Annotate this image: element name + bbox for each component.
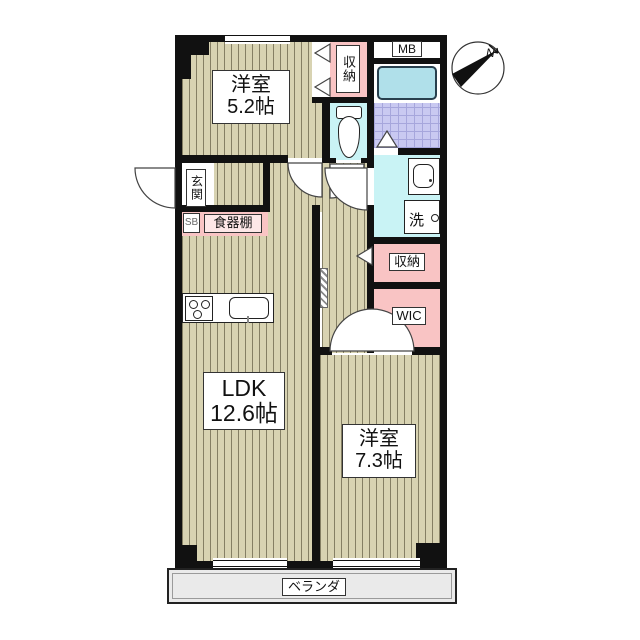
cupboard-label: 食器棚 xyxy=(204,214,262,233)
compass-arrow-glyph xyxy=(489,45,498,53)
entrance-label: 玄関 xyxy=(186,169,206,207)
shoebox-label: SB xyxy=(183,213,200,233)
washbasin-bowl xyxy=(413,164,434,188)
entrance-door-arc xyxy=(135,168,175,208)
ldk-size: 12.6帖 xyxy=(210,401,278,426)
kitchen-counter xyxy=(182,293,274,323)
veranda: ベランダ xyxy=(167,568,457,604)
bedroom1-label: 洋室 5.2帖 xyxy=(212,70,290,124)
stove-burner-1 xyxy=(189,300,198,309)
washbasin-drain xyxy=(429,179,432,182)
ldk-label: LDK 12.6帖 xyxy=(203,372,285,430)
kitchen-faucet xyxy=(247,316,249,323)
bedroom2-name: 洋室 xyxy=(359,429,399,451)
bedroom1-size: 5.2帖 xyxy=(227,97,275,119)
ldk-name: LDK xyxy=(222,376,267,401)
window-bedroom1-top xyxy=(225,33,290,44)
washbasin-counter xyxy=(408,158,440,195)
stove xyxy=(185,296,213,321)
compass-needle xyxy=(452,50,497,87)
stove-burner-2 xyxy=(201,300,210,309)
sliding-door-symbol xyxy=(320,268,328,308)
compass: N xyxy=(452,42,504,94)
laundry-label: 洗 xyxy=(409,209,424,230)
laundry-drain-circle xyxy=(431,214,439,222)
bedroom1-name: 洋室 xyxy=(231,75,271,97)
closet-top-label: 収納 xyxy=(336,45,360,93)
kitchen-sink xyxy=(229,297,269,319)
closet-mid-label: 収納 xyxy=(389,253,425,271)
wic-label: WIC xyxy=(392,307,426,325)
veranda-label: ベランダ xyxy=(282,578,346,596)
compass-n-label: N xyxy=(486,46,495,60)
laundry-pan: 洗 xyxy=(404,200,440,234)
bedroom2-size: 7.3帖 xyxy=(355,451,403,473)
bedroom2-label: 洋室 7.3帖 xyxy=(342,424,416,478)
floorplan-page: { "floorplan": { "compass": { "label": "… xyxy=(0,0,640,640)
compass-circle xyxy=(452,42,504,94)
stove-burner-3 xyxy=(193,310,202,319)
meter-box-label: MB xyxy=(392,41,422,57)
